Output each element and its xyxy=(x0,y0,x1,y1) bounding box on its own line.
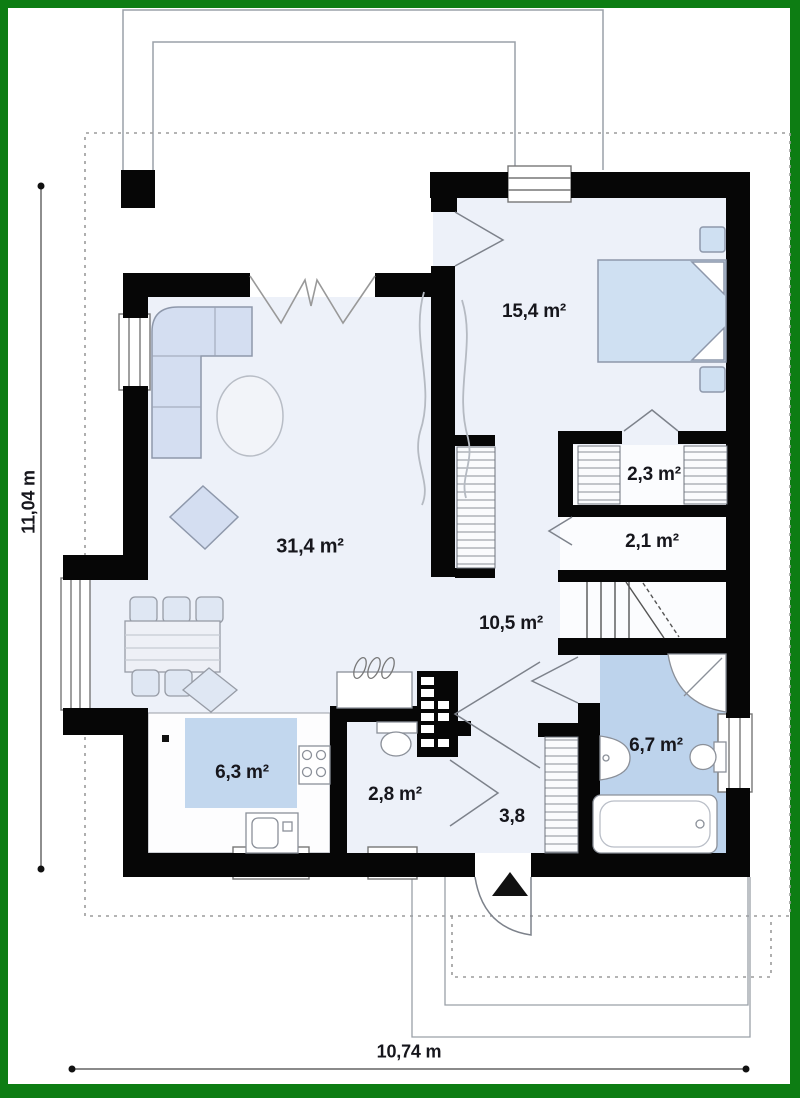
room-label-wc: 2,8 m² xyxy=(368,784,422,806)
window-bedroom-top xyxy=(508,166,571,202)
room-label-living: 31,4 m² xyxy=(276,536,344,559)
height-dimension-label: 11,04 m xyxy=(19,470,40,534)
window-bay-left xyxy=(61,578,90,710)
wardrobe-closet-right xyxy=(684,446,727,504)
bathtub xyxy=(593,795,717,853)
room-label-corridor: 2,1 m² xyxy=(625,531,679,553)
rug-oval xyxy=(217,376,283,456)
room-label-bathroom: 6,7 m² xyxy=(629,735,683,757)
room-label-kitchen: 6,3 m² xyxy=(215,762,269,784)
wc-toilet-tank xyxy=(377,722,417,733)
room-label-bedroom: 15,4 m² xyxy=(502,301,566,323)
terrace-pillar xyxy=(121,170,155,208)
dining-set xyxy=(125,597,237,712)
room-label-entry: 3,8 xyxy=(499,806,525,828)
floor-plan-canvas: 31,4 m² 15,4 m² 2,3 m² 2,1 m² 10,5 m² 6,… xyxy=(0,0,800,1098)
room-label-closet: 2,3 m² xyxy=(627,464,681,486)
wardrobe-closet-left xyxy=(578,446,620,504)
wardrobe-entry xyxy=(545,737,578,853)
floor-plan-drawing xyxy=(0,0,800,1098)
wc-toilet-bowl xyxy=(381,732,411,756)
washing-machine xyxy=(337,672,412,708)
width-dimension-label: 10,74 m xyxy=(377,1042,442,1063)
wardrobe-hall-west xyxy=(457,447,495,568)
dining-table xyxy=(125,621,220,672)
window-living-left xyxy=(119,314,150,390)
nightstand-bottom xyxy=(700,367,725,392)
nightstand-top xyxy=(700,227,725,252)
toilet-bowl xyxy=(690,745,716,770)
room-label-hall: 10,5 m² xyxy=(479,613,543,635)
